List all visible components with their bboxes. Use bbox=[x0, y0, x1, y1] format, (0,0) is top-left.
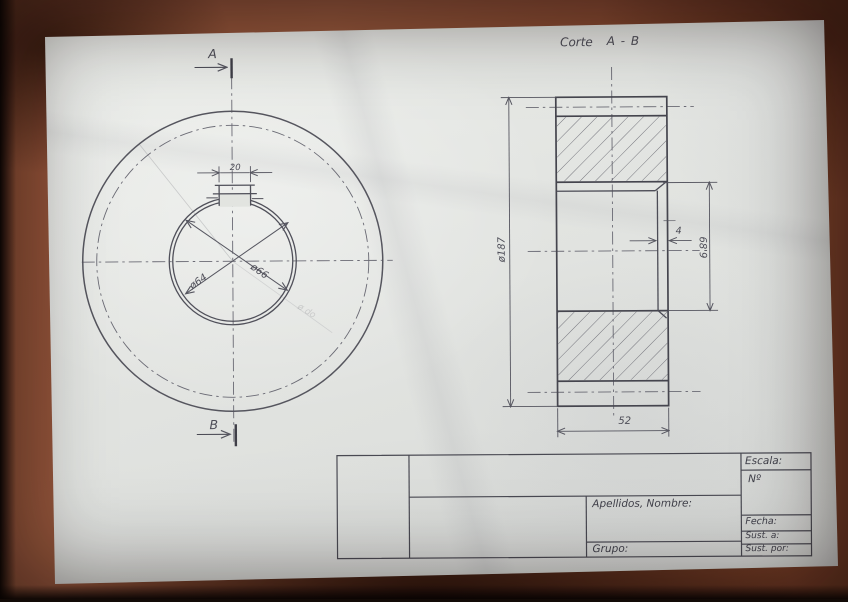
photo-vignette bbox=[0, 0, 848, 599]
